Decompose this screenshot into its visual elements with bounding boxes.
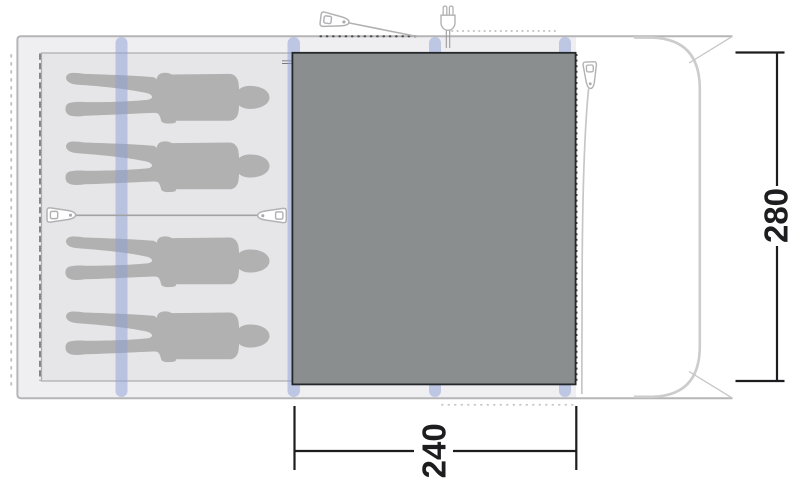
svg-text:280: 280 <box>758 188 795 243</box>
svg-text:240: 240 <box>416 423 453 478</box>
